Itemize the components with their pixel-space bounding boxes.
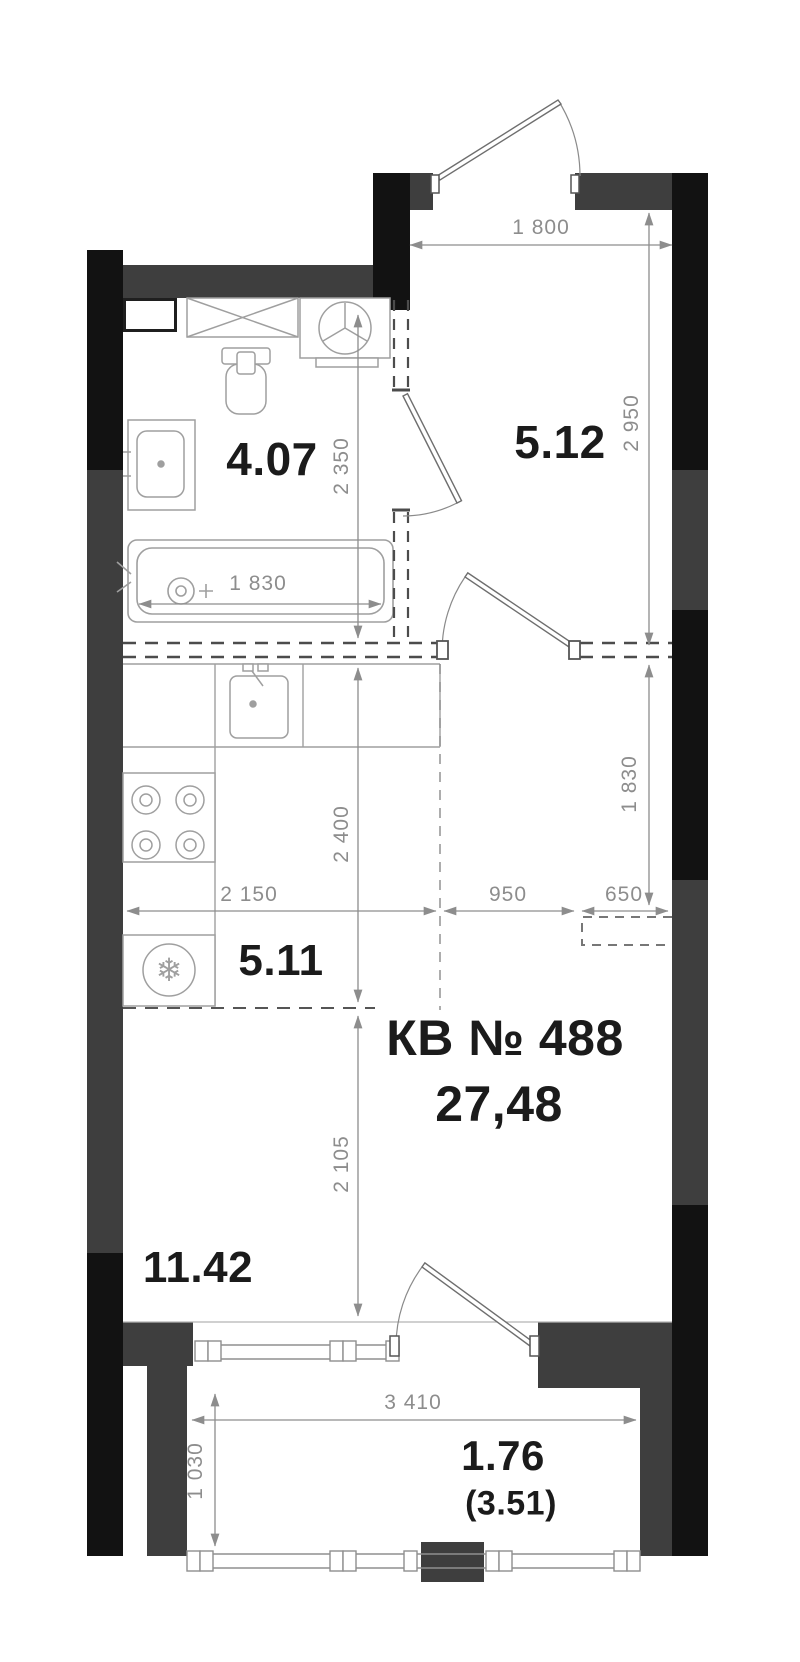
dim-bath-depth: 2 350 <box>330 437 354 495</box>
room-label-bathroom: 4.07 <box>226 432 318 486</box>
dim-balcony-depth: 1 030 <box>184 1442 208 1500</box>
dim-door-zone: 950 <box>489 883 527 907</box>
room-label-balcony-total: (3.51) <box>465 1485 557 1524</box>
living-room-window-icon <box>195 1341 399 1361</box>
toilet-icon <box>222 348 270 414</box>
balcony-glazing-icon <box>187 1551 640 1571</box>
kitchen-sink-icon <box>230 664 288 738</box>
water-heater-icon <box>300 298 390 367</box>
dim-hall-depth: 2 950 <box>620 394 644 452</box>
apartment-area: 27,48 <box>435 1075 563 1133</box>
dim-kitchen-width: 2 150 <box>220 883 278 907</box>
apartment-number: КВ № 488 <box>386 1009 624 1067</box>
hall-door-icon <box>437 573 580 659</box>
room-label-living: 11.42 <box>143 1243 253 1293</box>
floor-plan: ❄ <box>0 0 800 1662</box>
virtual-partition-bathroom <box>392 300 410 641</box>
entry-door-icon <box>431 100 580 193</box>
washing-machine-icon <box>187 298 298 337</box>
room-label-kitchen: 5.11 <box>238 936 323 986</box>
dim-entry-width: 1 800 <box>512 216 570 240</box>
stove-icon <box>123 773 215 862</box>
dim-kitchen-depth: 2 400 <box>330 805 354 863</box>
fridge-snowflake-icon: ❄ <box>123 935 215 1006</box>
dim-bathtub: 1 830 <box>229 572 287 596</box>
sink-icon <box>123 420 195 510</box>
room-label-hallway: 5.12 <box>514 415 606 469</box>
room-label-balcony: 1.76 <box>461 1432 545 1480</box>
dim-closet-width: 650 <box>605 883 643 907</box>
dim-closet-depth: 1 830 <box>618 755 642 813</box>
dashed-niche <box>582 917 672 945</box>
dim-balcony-width: 3 410 <box>384 1391 442 1415</box>
virtual-partition-horizontal <box>123 643 672 657</box>
balcony-door-icon <box>390 1263 539 1356</box>
svg-text:❄: ❄ <box>156 952 183 988</box>
bathroom-door-icon <box>403 394 462 516</box>
dim-living-depth: 2 105 <box>330 1135 354 1193</box>
